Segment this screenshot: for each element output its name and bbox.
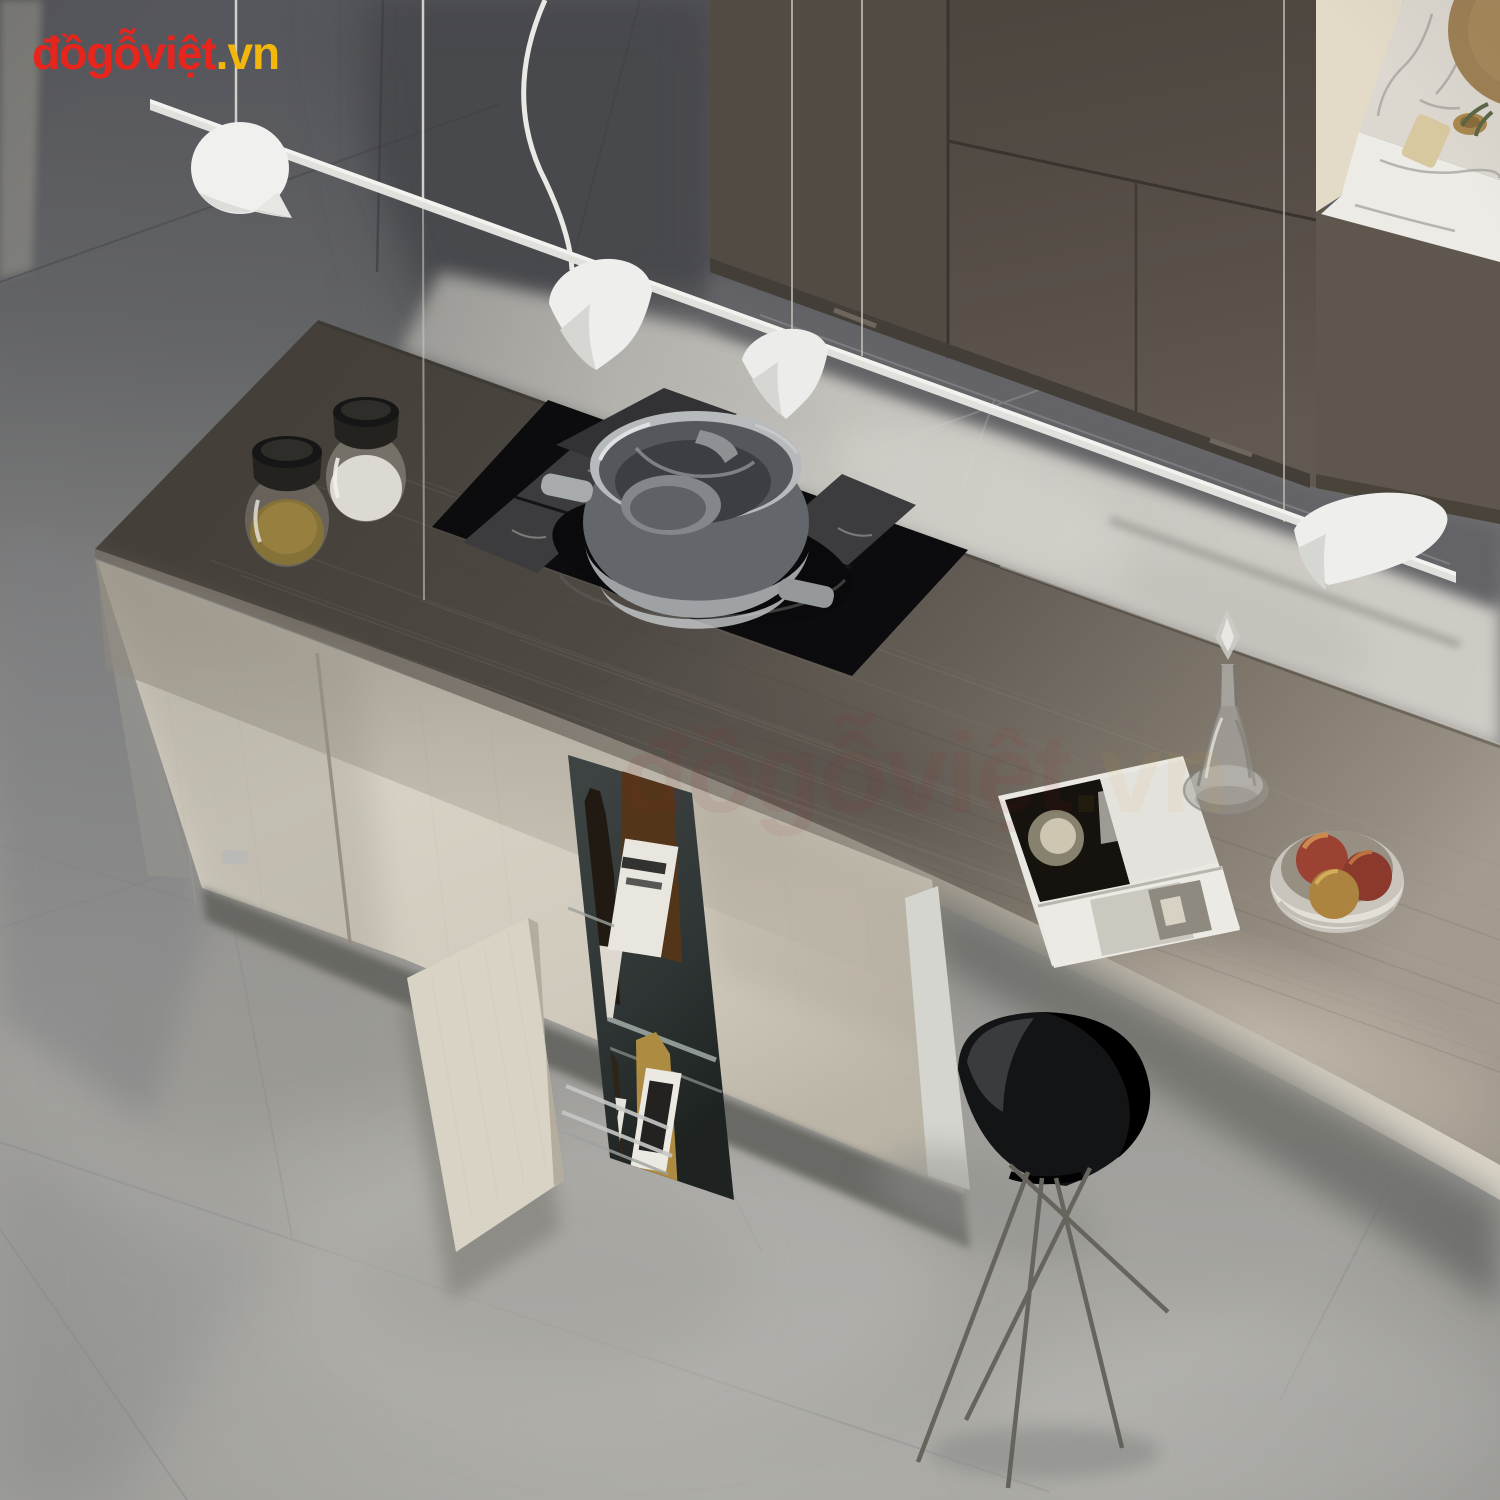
svg-text:đồgỗviệt.vn: đồgỗviệt.vn — [32, 27, 279, 79]
svg-text:đồgỗviệt.vn: đồgỗviệt.vn — [620, 711, 1226, 836]
